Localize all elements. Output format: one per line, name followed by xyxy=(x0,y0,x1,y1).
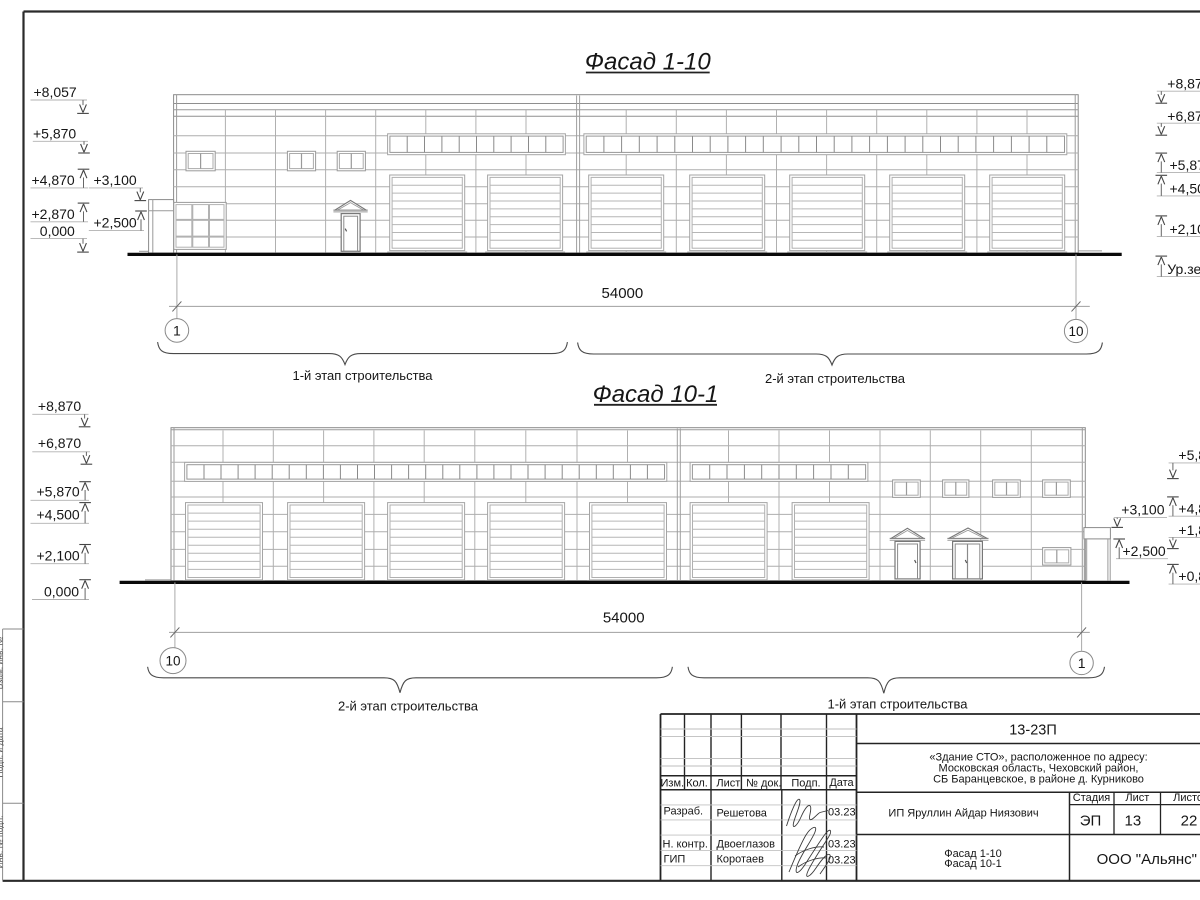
svg-text:+2,500: +2,500 xyxy=(1123,543,1166,559)
svg-text:Изм.: Изм. xyxy=(661,778,685,790)
svg-text:+0,870: +0,870 xyxy=(1178,568,1200,584)
svg-text:Двоеглазов: Двоеглазов xyxy=(717,838,776,850)
svg-text:Решетова: Решетова xyxy=(717,807,768,819)
svg-text:+5,870: +5,870 xyxy=(37,484,80,500)
svg-text:ЭП: ЭП xyxy=(1080,812,1102,829)
svg-text:Лист: Лист xyxy=(716,778,740,790)
svg-text:+2,100: +2,100 xyxy=(1170,221,1200,237)
svg-text:Подп.: Подп. xyxy=(791,778,820,790)
svg-text:Разраб.: Разраб. xyxy=(664,806,704,818)
svg-text:Инв. № подл.: Инв. № подл. xyxy=(0,816,5,869)
svg-text:+2,870: +2,870 xyxy=(32,206,75,222)
svg-text:1-й этап строительства: 1-й этап строительства xyxy=(827,696,968,711)
svg-text:Фасад 10-1: Фасад 10-1 xyxy=(593,381,719,408)
svg-text:0,000: 0,000 xyxy=(44,584,79,600)
svg-text:1-й этап строительства: 1-й этап строительства xyxy=(292,368,433,383)
svg-text:10: 10 xyxy=(165,654,180,669)
svg-text:2-й этап строительства: 2-й этап строительства xyxy=(765,371,906,386)
svg-text:1: 1 xyxy=(173,322,181,338)
svg-text:Стадия: Стадия xyxy=(1073,792,1111,804)
svg-text:+4,500: +4,500 xyxy=(37,507,80,523)
svg-text:Фасад 10-1: Фасад 10-1 xyxy=(944,858,1002,870)
svg-text:ИП Яруллин Айдар Ниязович: ИП Яруллин Айдар Ниязович xyxy=(888,807,1038,819)
svg-text:+5,870: +5,870 xyxy=(33,126,76,142)
svg-text:+4,500: +4,500 xyxy=(1170,181,1200,197)
svg-text:Листов: Листов xyxy=(1173,792,1200,804)
svg-text:03.23: 03.23 xyxy=(828,807,856,819)
svg-text:0,000: 0,000 xyxy=(40,223,75,239)
svg-text:Дата: Дата xyxy=(829,777,854,789)
svg-text:Взам. инв. №: Взам. инв. № xyxy=(0,637,5,690)
svg-text:+8,057: +8,057 xyxy=(34,84,77,100)
svg-text:ООО "Альянс": ООО "Альянс" xyxy=(1097,851,1197,868)
svg-text:+8,870: +8,870 xyxy=(1167,76,1200,92)
svg-text:+2,500: +2,500 xyxy=(94,215,137,231)
svg-text:№ док.: № док. xyxy=(746,778,781,790)
svg-text:+4,870: +4,870 xyxy=(1178,501,1200,517)
svg-text:+3,100: +3,100 xyxy=(1121,502,1164,518)
svg-text:Фасад 1-10: Фасад 1-10 xyxy=(585,48,711,75)
svg-text:2-й этап строительства: 2-й этап строительства xyxy=(338,698,479,713)
svg-text:22: 22 xyxy=(1181,812,1198,829)
svg-text:ГИП: ГИП xyxy=(664,853,686,865)
svg-text:+5,870: +5,870 xyxy=(1170,157,1200,173)
svg-text:03.23: 03.23 xyxy=(828,854,856,866)
svg-text:СБ Баранцевское, в районе д. К: СБ Баранцевское, в районе д. Курниково xyxy=(933,773,1144,785)
svg-text:Кол.: Кол. xyxy=(686,778,708,790)
svg-text:54000: 54000 xyxy=(602,285,644,302)
svg-text:54000: 54000 xyxy=(603,610,645,627)
svg-text:13-23П: 13-23П xyxy=(1009,722,1057,738)
svg-text:1: 1 xyxy=(1078,655,1086,671)
svg-text:+4,870: +4,870 xyxy=(32,172,75,188)
svg-text:+6,870: +6,870 xyxy=(1167,108,1200,124)
svg-text:+6,870: +6,870 xyxy=(38,435,81,451)
svg-text:+8,870: +8,870 xyxy=(38,398,81,414)
svg-text:Н. контр.: Н. контр. xyxy=(663,838,708,850)
svg-text:Лист: Лист xyxy=(1125,792,1149,804)
svg-text:10: 10 xyxy=(1068,324,1083,339)
svg-text:13: 13 xyxy=(1125,812,1142,829)
svg-text:03.23: 03.23 xyxy=(828,839,856,851)
svg-text:+3,100: +3,100 xyxy=(94,172,137,188)
svg-text:Коротаев: Коротаев xyxy=(717,853,765,865)
svg-text:Подп. и дата: Подп. и дата xyxy=(0,727,5,777)
svg-text:+1,800: +1,800 xyxy=(1178,522,1200,538)
svg-text:+2,100: +2,100 xyxy=(37,547,80,563)
svg-text:Ур.земли: Ур.земли xyxy=(1167,261,1200,277)
svg-text:+5,870: +5,870 xyxy=(1178,447,1200,463)
